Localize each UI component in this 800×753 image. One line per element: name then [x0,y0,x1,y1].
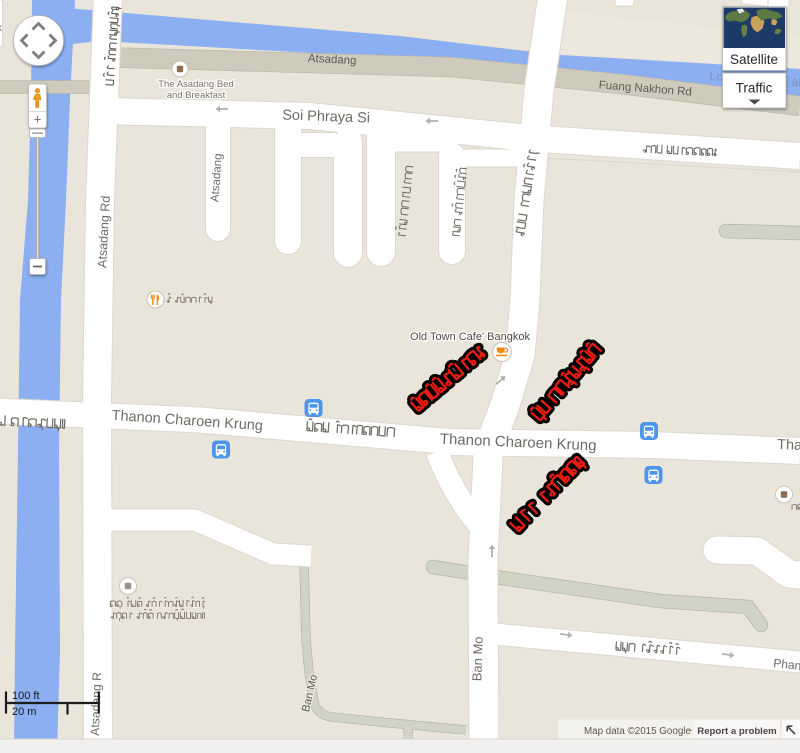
svg-text:Satellite: Satellite [730,52,778,67]
svg-text:Phan: Phan [773,656,800,673]
svg-text:The Asadang Bed: The Asadang Bed [158,79,234,90]
svg-text:100 ft: 100 ft [12,690,40,702]
svg-text:Old Town Cafe' Bangkok: Old Town Cafe' Bangkok [410,331,530,343]
svg-text:Soi Phraya Si: Soi Phraya Si [282,107,370,126]
svg-text:and Breakfast: and Breakfast [167,90,226,101]
svg-text:Report a problem: Report a problem [697,726,776,737]
svg-text:Ban Mo: Ban Mo [469,636,486,681]
svg-text:+: + [34,112,42,127]
svg-text:Map data ©2015 Google: Map data ©2015 Google [584,726,691,737]
svg-text:-: - [689,725,692,736]
svg-text:20 m: 20 m [12,706,36,718]
svg-text:Traffic: Traffic [736,81,773,96]
svg-text:Atsadang: Atsadang [308,53,357,68]
svg-text:ab: ab [791,74,800,90]
